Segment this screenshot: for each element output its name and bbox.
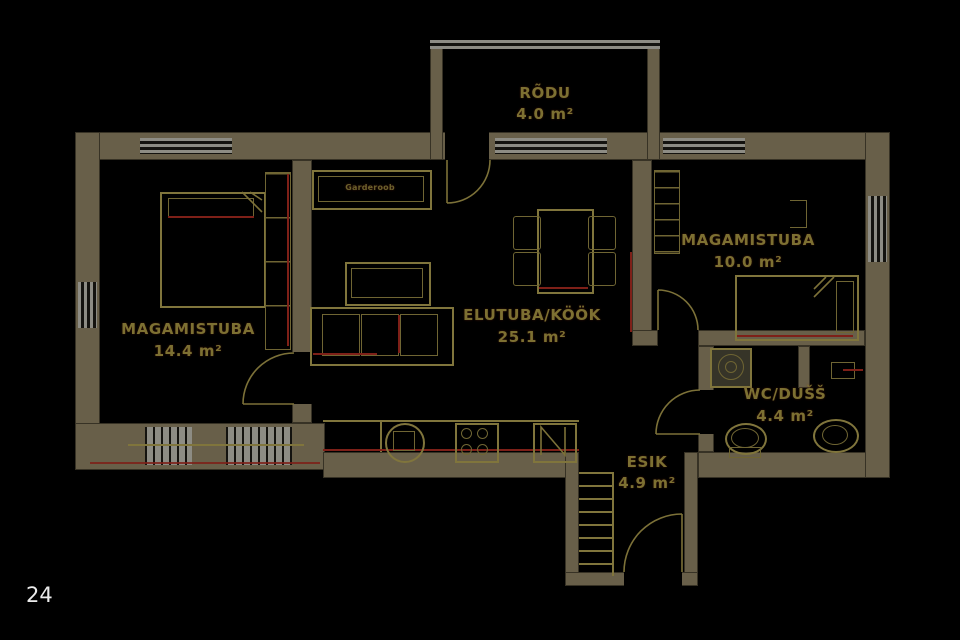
bedroom2-door-arc (658, 290, 698, 330)
room-name-wc: WC/DUŠŠ (744, 387, 827, 402)
room-area-wc: 4.4 m² (756, 409, 814, 424)
wc-door-arc (656, 390, 700, 434)
floor-plan: Garderoob (0, 0, 960, 640)
room-area-living: 25.1 m² (498, 330, 567, 345)
bed-fold-line (814, 277, 834, 297)
entry-door-arc (624, 514, 682, 572)
bed-fold-line (242, 192, 262, 212)
room-name-esik: ESIK (627, 455, 668, 470)
bedroom1-door-arc (243, 353, 294, 404)
room-name-bedroom1: MAGAMISTUBA (121, 322, 255, 337)
fridge-symbol (541, 427, 565, 455)
room-area-rodu: 4.0 m² (516, 107, 574, 122)
room-name-living: ELUTUBA/KÖÖK (463, 308, 601, 323)
closet-label: Garderoob (345, 184, 395, 192)
room-area-bedroom2: 10.0 m² (714, 255, 783, 270)
balcony-door-arc (447, 160, 490, 203)
page-number: 24 (26, 583, 53, 607)
room-name-rodu: RÕDU (519, 86, 570, 101)
room-area-esik: 4.9 m² (618, 476, 676, 491)
room-area-bedroom1: 14.4 m² (154, 344, 223, 359)
room-name-bedroom2: MAGAMISTUBA (681, 233, 815, 248)
